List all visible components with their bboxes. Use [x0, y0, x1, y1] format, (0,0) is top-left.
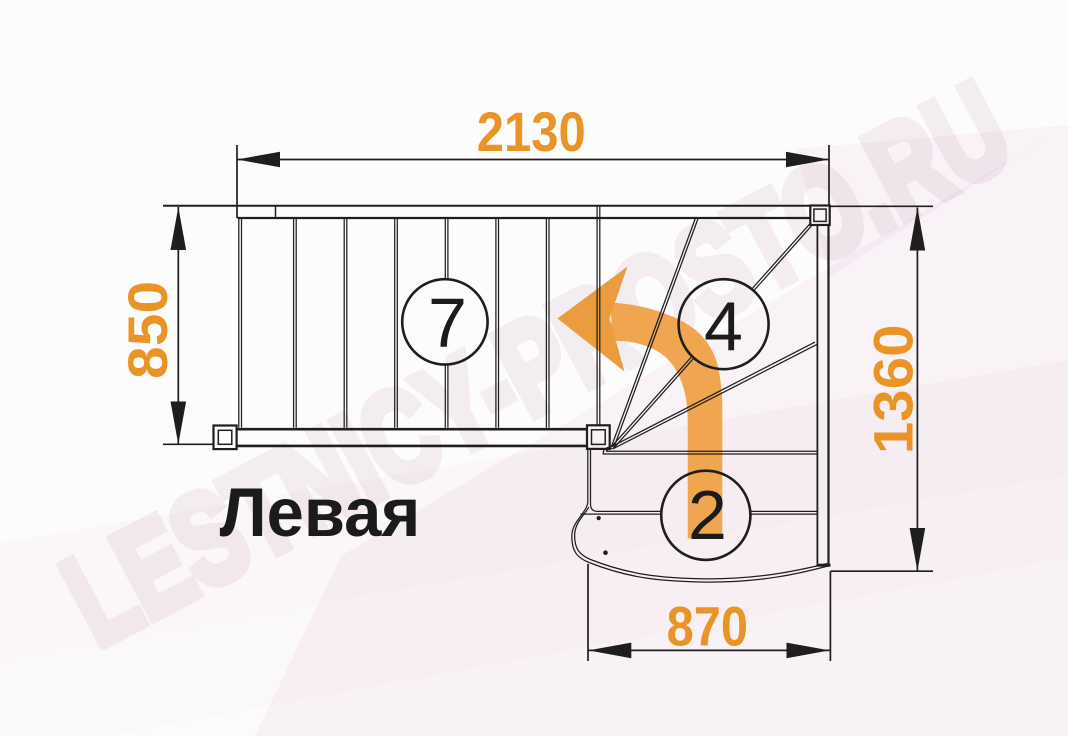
svg-text:850: 850 [117, 281, 179, 379]
svg-text:870: 870 [667, 595, 748, 658]
svg-text:2: 2 [688, 476, 727, 554]
svg-text:2130: 2130 [477, 101, 586, 164]
svg-text:7: 7 [428, 284, 467, 362]
svg-text:1360: 1360 [863, 325, 926, 455]
svg-text:4: 4 [704, 288, 743, 366]
svg-text:Левая: Левая [220, 474, 421, 551]
